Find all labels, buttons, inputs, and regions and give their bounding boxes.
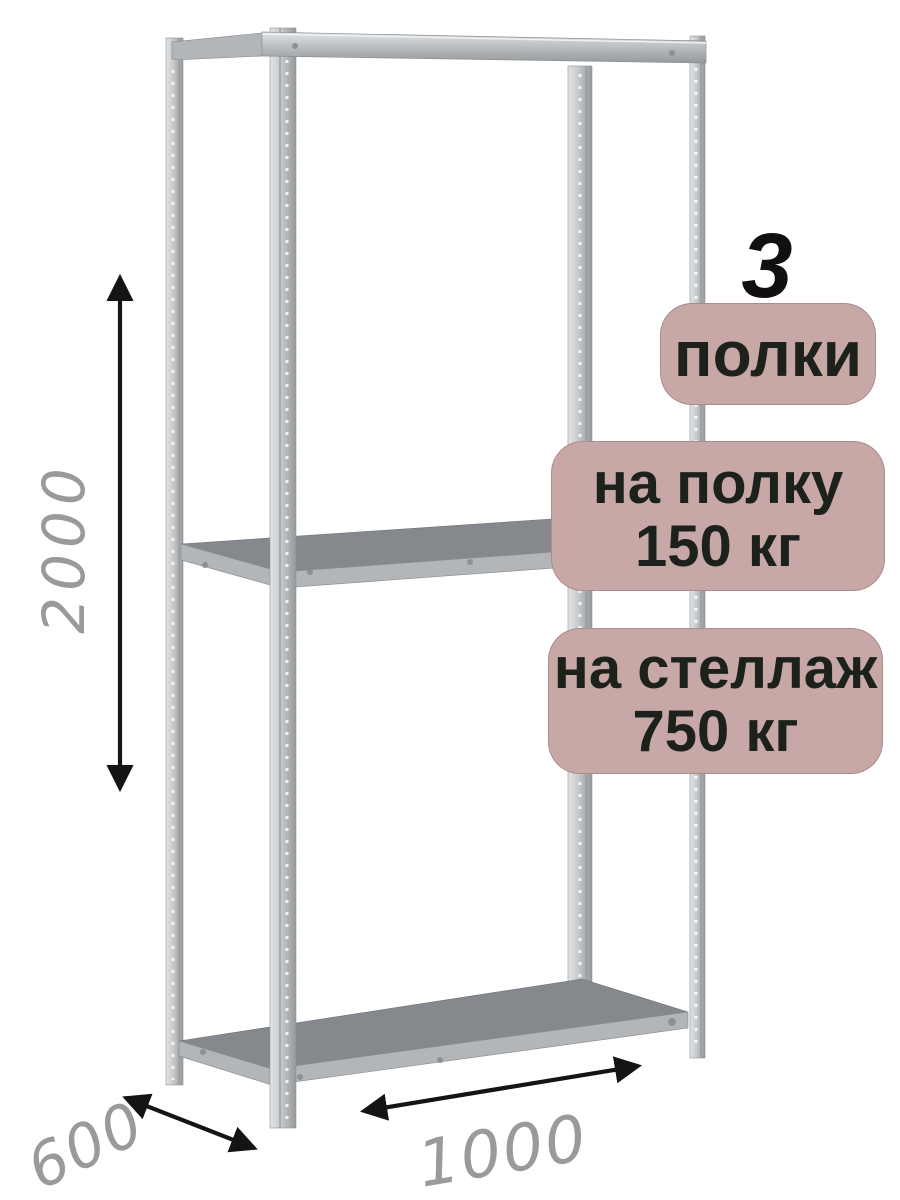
post-front-left <box>270 28 296 1128</box>
shelves-badge-label: полки <box>674 317 862 391</box>
top-shelf-left-edge <box>172 33 262 60</box>
shelf-load-line2: 150 кг <box>635 516 801 579</box>
post-back-left <box>166 38 183 1085</box>
shelf-load-badge: на полку 150 кг <box>551 441 885 591</box>
height-dimension-label: 2000 <box>29 418 99 678</box>
rack-load-badge: на стеллаж 750 кг <box>548 628 883 774</box>
shelves-badge: полки <box>660 303 876 405</box>
rack-illustration <box>0 0 900 1200</box>
shelves-count-number: 3 <box>660 220 874 312</box>
shelf-top <box>262 32 706 63</box>
product-image: 3 полки на полку 150 кг на стеллаж 750 к… <box>0 0 900 1200</box>
rack-load-line1: на стеллаж <box>554 638 877 701</box>
shelf-load-line1: на полку <box>593 453 844 516</box>
rack-load-line2: 750 кг <box>632 701 798 764</box>
